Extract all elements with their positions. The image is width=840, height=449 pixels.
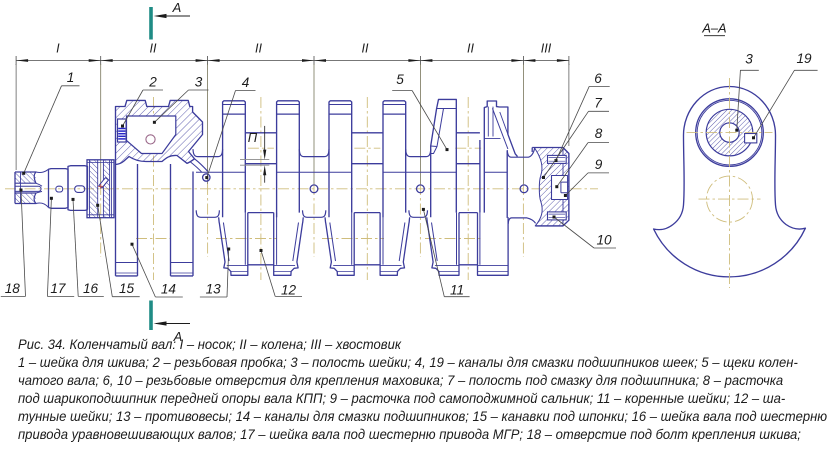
svg-text:I: I — [56, 42, 60, 56]
svg-text:8: 8 — [595, 126, 603, 141]
svg-text:15: 15 — [119, 281, 135, 296]
svg-text:5: 5 — [396, 72, 404, 87]
svg-text:3: 3 — [745, 52, 753, 67]
svg-text:2: 2 — [148, 75, 157, 90]
svg-text:4: 4 — [242, 75, 250, 90]
svg-text:II: II — [362, 42, 369, 56]
svg-text:III: III — [541, 42, 552, 56]
svg-text:11: 11 — [450, 283, 464, 298]
svg-text:А–А: А–А — [701, 21, 726, 36]
svg-text:II: II — [150, 42, 157, 56]
svg-text:13: 13 — [206, 282, 222, 297]
svg-text:II: II — [255, 42, 262, 56]
svg-text:10: 10 — [596, 233, 612, 248]
svg-text:7: 7 — [594, 95, 602, 110]
svg-text:12: 12 — [281, 282, 297, 297]
svg-text:П: П — [248, 130, 258, 145]
svg-text:А: А — [172, 0, 182, 15]
svg-text:19: 19 — [796, 51, 812, 66]
svg-text:18: 18 — [5, 281, 21, 296]
svg-text:9: 9 — [595, 157, 603, 172]
svg-text:3: 3 — [195, 75, 203, 90]
svg-text:1: 1 — [67, 70, 75, 85]
svg-text:6: 6 — [594, 71, 602, 86]
svg-text:II: II — [467, 42, 474, 56]
svg-text:14: 14 — [161, 282, 177, 297]
svg-text:16: 16 — [83, 281, 99, 296]
svg-text:17: 17 — [50, 281, 66, 296]
